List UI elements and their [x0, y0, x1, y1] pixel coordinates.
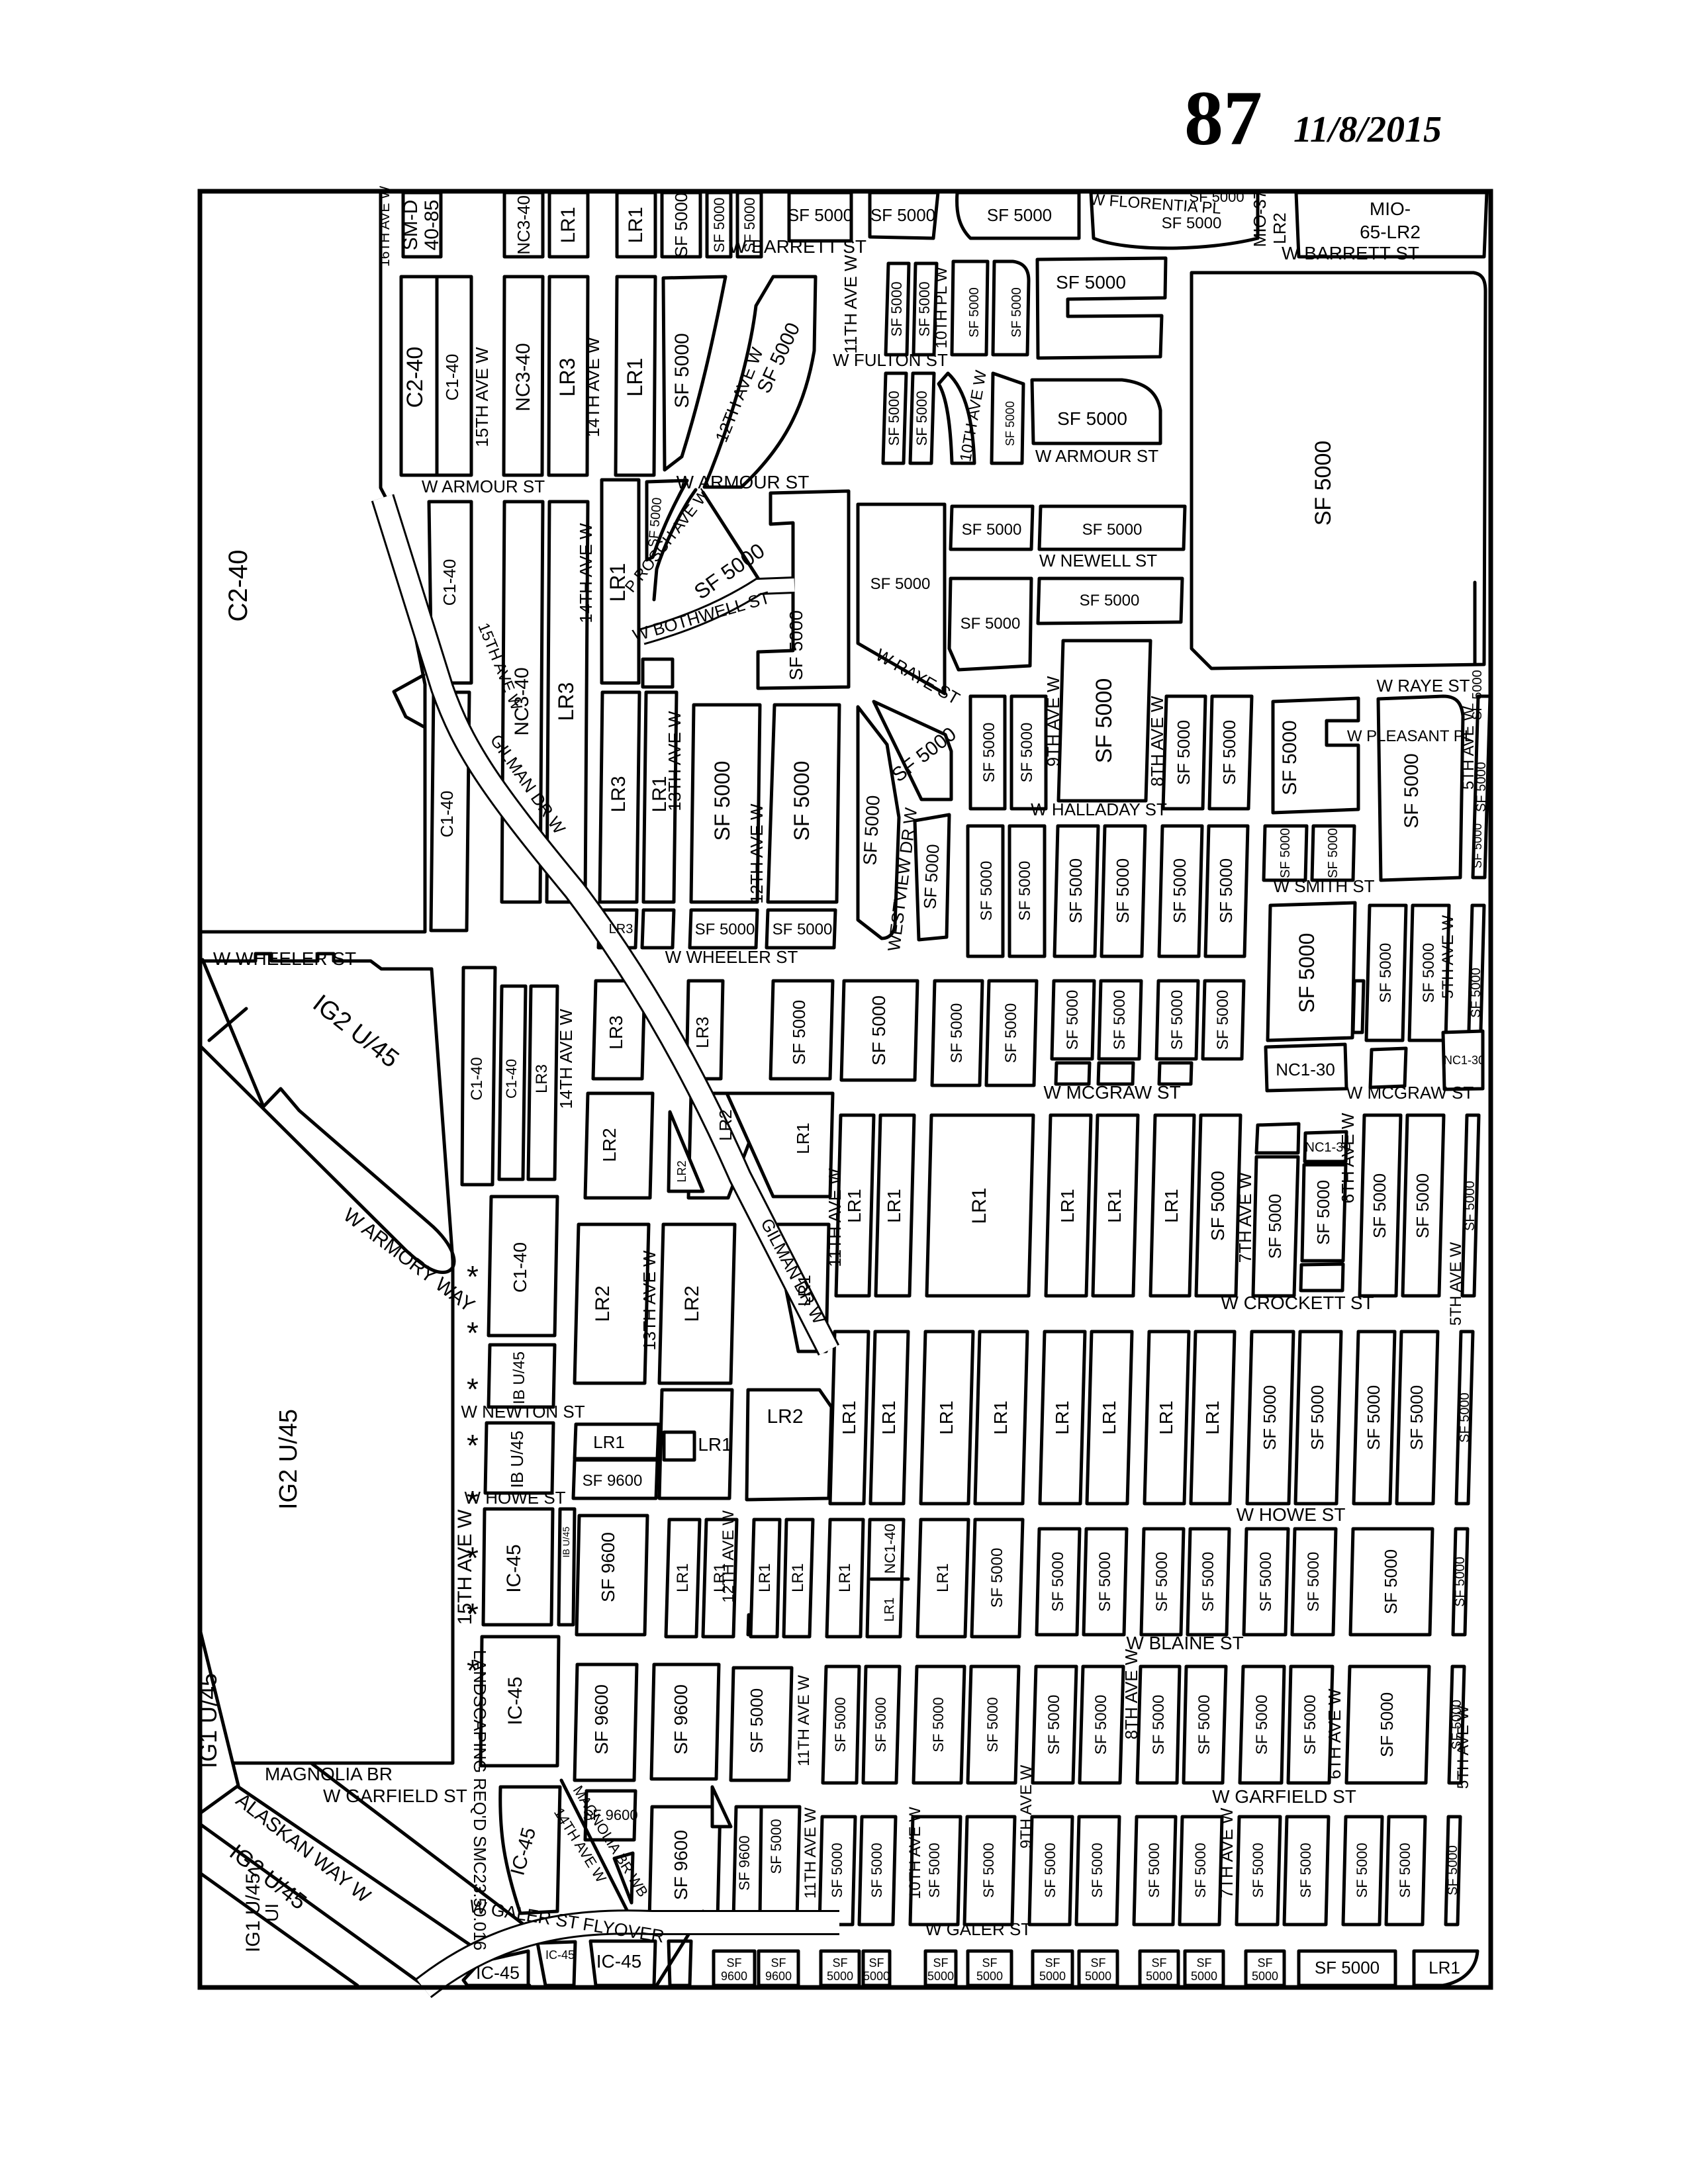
- svg-text:LR1: LR1: [1156, 1400, 1176, 1434]
- svg-text:SF 5000: SF 5000: [1471, 823, 1484, 868]
- svg-text:SF 5000: SF 5000: [1111, 990, 1129, 1050]
- svg-text:C2-40: C2-40: [224, 550, 253, 622]
- svg-text:SF 5000: SF 5000: [1219, 720, 1239, 785]
- svg-text:SF 5000: SF 5000: [987, 205, 1052, 225]
- svg-text:W BARRETT ST: W BARRETT ST: [1282, 243, 1419, 263]
- svg-text:8TH AVE W: 8TH AVE W: [1147, 696, 1167, 786]
- svg-text:SF 5000: SF 5000: [1446, 1845, 1460, 1895]
- svg-text:SF 5000: SF 5000: [1207, 1171, 1228, 1241]
- svg-text:SF: SF: [1257, 1956, 1272, 1970]
- svg-text:SF 5000: SF 5000: [1096, 1552, 1114, 1612]
- svg-text:IC-45: IC-45: [476, 1963, 520, 1983]
- svg-text:SF 5000: SF 5000: [1199, 1552, 1217, 1612]
- svg-text:SF 5000: SF 5000: [980, 723, 998, 783]
- svg-text:SF 5000: SF 5000: [786, 610, 806, 680]
- svg-text:SF 5000: SF 5000: [914, 390, 930, 445]
- svg-text:SF 9600: SF 9600: [736, 1835, 753, 1890]
- svg-text:SF 5000: SF 5000: [1305, 1552, 1323, 1612]
- svg-text:5000: 5000: [1191, 1970, 1217, 1983]
- svg-text:SF 5000: SF 5000: [1066, 858, 1086, 923]
- svg-text:LR1: LR1: [1161, 1189, 1182, 1222]
- svg-text:SF 5000: SF 5000: [926, 1843, 943, 1897]
- svg-text:LR1: LR1: [1429, 1958, 1460, 1978]
- svg-text:SF 5000: SF 5000: [832, 1697, 849, 1752]
- svg-text:SF 5000: SF 5000: [1370, 1173, 1389, 1238]
- svg-text:W NEWELL ST: W NEWELL ST: [1039, 551, 1157, 570]
- svg-text:SF 5000: SF 5000: [1042, 1843, 1058, 1897]
- svg-text:IB U/45: IB U/45: [510, 1351, 528, 1404]
- svg-text:SF 5000: SF 5000: [789, 1000, 809, 1065]
- svg-text:MIO-: MIO-: [1370, 199, 1411, 219]
- svg-text:SF 5000: SF 5000: [1168, 990, 1186, 1050]
- svg-text:W HOWE ST: W HOWE ST: [464, 1488, 565, 1508]
- svg-text:LR1: LR1: [593, 1432, 625, 1452]
- svg-text:LR1: LR1: [1057, 1189, 1078, 1222]
- svg-text:IC-45: IC-45: [503, 1544, 525, 1592]
- svg-text:LR1: LR1: [623, 358, 647, 397]
- svg-text:14TH AVE W: 14TH AVE W: [576, 523, 596, 623]
- svg-text:LR1: LR1: [844, 1189, 865, 1222]
- svg-text:SF 5000: SF 5000: [868, 1843, 885, 1897]
- svg-text:5000: 5000: [1252, 1970, 1278, 1983]
- svg-text:11TH AVE W: 11TH AVE W: [825, 1168, 845, 1267]
- svg-text:SF 5000: SF 5000: [919, 844, 943, 910]
- svg-text:SF 5000: SF 5000: [1257, 1552, 1275, 1612]
- svg-text:SF 5000: SF 5000: [1297, 1843, 1314, 1897]
- svg-text:SF 5000: SF 5000: [1253, 1695, 1271, 1755]
- svg-text:IC-45: IC-45: [504, 1676, 526, 1725]
- svg-text:10TH AVE W: 10TH AVE W: [906, 1807, 924, 1899]
- svg-text:5000: 5000: [1085, 1970, 1111, 1983]
- svg-text:LR1: LR1: [878, 1400, 899, 1434]
- svg-text:SF 5000: SF 5000: [1004, 401, 1017, 446]
- svg-text:SF: SF: [1196, 1956, 1211, 1970]
- svg-text:8TH AVE W: 8TH AVE W: [1121, 1649, 1141, 1739]
- svg-text:SF 5000: SF 5000: [1377, 1692, 1397, 1757]
- svg-text:SF 5000: SF 5000: [888, 281, 905, 336]
- svg-text:LR1: LR1: [884, 1189, 904, 1222]
- svg-text:SF 5000: SF 5000: [1196, 1695, 1213, 1755]
- svg-text:SF 5000: SF 5000: [1092, 1695, 1110, 1755]
- svg-text:MIO-37: MIO-37: [1250, 190, 1270, 248]
- svg-text:SF: SF: [726, 1956, 741, 1970]
- svg-text:UI: UI: [261, 1903, 282, 1922]
- svg-text:15TH AVE W: 15TH AVE W: [472, 347, 492, 447]
- svg-text:LR2: LR2: [599, 1128, 620, 1161]
- svg-text:SF 5000: SF 5000: [961, 615, 1021, 633]
- svg-text:SF 5000: SF 5000: [1113, 858, 1133, 923]
- svg-text:LR1: LR1: [839, 1400, 859, 1434]
- svg-text:SF 5000: SF 5000: [980, 1843, 997, 1897]
- svg-text:14TH AVE W: 14TH AVE W: [583, 337, 603, 437]
- svg-text:IC-45: IC-45: [545, 1948, 575, 1962]
- svg-text:C1-40: C1-40: [510, 1242, 530, 1293]
- svg-text:SF 5000: SF 5000: [1364, 1385, 1383, 1450]
- svg-text:SF 5000: SF 5000: [978, 861, 996, 921]
- svg-text:5000: 5000: [827, 1970, 853, 1983]
- svg-text:SF 5000: SF 5000: [1397, 1843, 1413, 1897]
- svg-text:C1-40: C1-40: [437, 791, 457, 838]
- svg-text:SF 5000: SF 5000: [790, 761, 814, 841]
- svg-text:LR2: LR2: [681, 1285, 703, 1322]
- svg-text:W BARRETT ST: W BARRETT ST: [729, 236, 867, 257]
- svg-text:9600: 9600: [721, 1970, 747, 1983]
- svg-text:SF 5000: SF 5000: [1056, 272, 1126, 293]
- svg-text:NC1-30: NC1-30: [1444, 1054, 1485, 1067]
- svg-text:NC1-40: NC1-40: [882, 1524, 898, 1574]
- svg-text:7TH AVE W: 7TH AVE W: [1235, 1172, 1255, 1263]
- svg-text:9TH AVE W: 9TH AVE W: [1017, 1765, 1035, 1849]
- svg-text:LR3: LR3: [554, 682, 578, 721]
- svg-text:SF 5000: SF 5000: [1016, 861, 1034, 921]
- svg-text:12TH AVE W: 12TH AVE W: [720, 1510, 737, 1603]
- svg-text:IG1 U/45: IG1 U/45: [195, 1673, 222, 1768]
- svg-text:SF 5000: SF 5000: [916, 281, 933, 336]
- svg-text:LR1: LR1: [1202, 1400, 1223, 1434]
- svg-text:SF 5000: SF 5000: [1377, 943, 1395, 1003]
- svg-text:5000: 5000: [863, 1970, 890, 1983]
- svg-text:SF 5000: SF 5000: [1082, 521, 1143, 539]
- svg-text:SF 5000: SF 5000: [1192, 1843, 1209, 1897]
- svg-text:65-LR2: 65-LR2: [1360, 222, 1421, 242]
- svg-text:W MCGRAW ST: W MCGRAW ST: [1043, 1082, 1180, 1103]
- svg-text:SF 5000: SF 5000: [1174, 720, 1194, 785]
- svg-text:SF 5000: SF 5000: [1250, 1843, 1266, 1897]
- svg-text:SF 5000: SF 5000: [988, 1548, 1006, 1608]
- svg-text:SF 5000: SF 5000: [886, 390, 902, 445]
- svg-text:9TH AVE W: 9TH AVE W: [1043, 676, 1063, 766]
- svg-text:W HOWE ST: W HOWE ST: [1237, 1504, 1346, 1525]
- svg-text:LR2: LR2: [675, 1160, 688, 1182]
- svg-text:SF 5000: SF 5000: [962, 521, 1022, 539]
- svg-text:SF 5000: SF 5000: [1453, 1557, 1468, 1607]
- svg-text:NC3-40: NC3-40: [514, 195, 534, 255]
- svg-text:SF: SF: [771, 1956, 786, 1970]
- svg-text:*: *: [467, 1316, 479, 1350]
- svg-text:SF 5000: SF 5000: [1401, 753, 1423, 828]
- svg-text:LR1: LR1: [625, 206, 647, 243]
- svg-text:5TH AVE W: 5TH AVE W: [1447, 1242, 1465, 1326]
- svg-text:SF: SF: [933, 1956, 948, 1970]
- svg-text:SF 5000: SF 5000: [1064, 990, 1082, 1050]
- svg-text:SF 5000: SF 5000: [1278, 828, 1293, 878]
- svg-text:SF 5000: SF 5000: [1080, 592, 1140, 610]
- svg-text:SF 5000: SF 5000: [984, 1697, 1001, 1752]
- svg-text:14TH AVE W: 14TH AVE W: [556, 1009, 576, 1109]
- svg-text:SF 5000: SF 5000: [1469, 968, 1483, 1018]
- svg-text:SF 5000: SF 5000: [1049, 1552, 1067, 1612]
- svg-text:SF 5000: SF 5000: [1089, 1843, 1105, 1897]
- svg-text:LR2: LR2: [716, 1109, 735, 1141]
- svg-text:SF 5000: SF 5000: [1307, 1385, 1327, 1450]
- svg-text:SF 5000: SF 5000: [1216, 858, 1236, 923]
- svg-text:87: 87: [1184, 75, 1262, 161]
- svg-text:*: *: [467, 1428, 479, 1463]
- svg-text:SF: SF: [982, 1956, 997, 1970]
- svg-text:W ARMOUR ST: W ARMOUR ST: [422, 477, 545, 496]
- svg-text:SF 5000: SF 5000: [870, 205, 935, 225]
- svg-text:LR1: LR1: [934, 1563, 952, 1592]
- svg-text:MAGNOLIA BR: MAGNOLIA BR: [265, 1764, 393, 1784]
- svg-text:SF 5000: SF 5000: [1407, 1385, 1427, 1450]
- svg-text:SF 5000: SF 5000: [1260, 1385, 1280, 1450]
- svg-text:LR1: LR1: [882, 1598, 897, 1622]
- svg-text:SF 5000: SF 5000: [768, 1819, 784, 1874]
- svg-text:C2-40: C2-40: [402, 347, 428, 408]
- svg-text:SF 5000: SF 5000: [1150, 1695, 1168, 1755]
- svg-text:SF 5000: SF 5000: [710, 761, 734, 841]
- svg-text:W ARMOUR ST: W ARMOUR ST: [1035, 446, 1158, 466]
- svg-text:5TH AVE W: 5TH AVE W: [1439, 915, 1457, 999]
- svg-text:7TH AVE W: 7TH AVE W: [1217, 1807, 1237, 1898]
- svg-text:SF 5000: SF 5000: [1326, 828, 1340, 878]
- svg-text:12TH AVE W: 12TH AVE W: [747, 803, 767, 904]
- svg-text:IB U/45: IB U/45: [561, 1526, 571, 1557]
- svg-text:SF: SF: [868, 1956, 884, 1970]
- svg-text:W GARFIELD ST: W GARFIELD ST: [323, 1786, 467, 1806]
- svg-text:LR3: LR3: [608, 776, 630, 812]
- svg-text:9600: 9600: [765, 1970, 792, 1983]
- svg-text:SF 5000: SF 5000: [1214, 990, 1232, 1050]
- svg-text:*: *: [467, 1259, 479, 1294]
- svg-text:5000: 5000: [927, 1970, 954, 1983]
- svg-text:16TH AVE W: 16TH AVE W: [377, 186, 393, 267]
- svg-text:LR1: LR1: [836, 1563, 854, 1592]
- svg-text:11TH AVE W: 11TH AVE W: [802, 1807, 820, 1899]
- svg-text:SF 5000: SF 5000: [1381, 1549, 1401, 1614]
- svg-text:SF 5000: SF 5000: [1474, 762, 1489, 812]
- svg-text:SF 9600: SF 9600: [583, 1472, 643, 1490]
- svg-text:LR2: LR2: [767, 1406, 803, 1428]
- svg-text:SF 5000: SF 5000: [1146, 1843, 1162, 1897]
- svg-text:LR1: LR1: [756, 1563, 774, 1592]
- svg-text:NC3-40: NC3-40: [512, 343, 534, 411]
- svg-text:15TH AVE W: 15TH AVE W: [454, 1509, 476, 1625]
- svg-text:C1-40: C1-40: [503, 1059, 520, 1099]
- svg-text:11/8/2015: 11/8/2015: [1293, 109, 1442, 150]
- svg-text:SF 5000: SF 5000: [930, 1697, 947, 1752]
- svg-text:W PLEASANT PL: W PLEASANT PL: [1347, 727, 1473, 745]
- svg-text:SF 5000: SF 5000: [671, 193, 691, 257]
- svg-text:LR1: LR1: [793, 1122, 813, 1154]
- svg-text:SF 9600: SF 9600: [583, 1807, 637, 1823]
- svg-text:LR1: LR1: [1099, 1400, 1119, 1434]
- svg-text:SF 5000: SF 5000: [1463, 1181, 1477, 1231]
- svg-text:LR1: LR1: [674, 1563, 692, 1592]
- svg-text:6TH AVE W: 6TH AVE W: [1338, 1113, 1358, 1203]
- svg-text:SF 5000: SF 5000: [1301, 1695, 1319, 1755]
- svg-text:SF 5000: SF 5000: [1279, 720, 1301, 795]
- svg-text:13TH AVE W: 13TH AVE W: [665, 711, 684, 811]
- svg-text:SF 5000: SF 5000: [1009, 287, 1024, 338]
- svg-text:SF 5000: SF 5000: [1413, 1173, 1432, 1238]
- svg-text:W SMITH ST: W SMITH ST: [1273, 876, 1374, 896]
- svg-text:SF 5000: SF 5000: [788, 205, 853, 225]
- svg-text:6TH AVE W: 6TH AVE W: [1325, 1688, 1344, 1779]
- svg-text:LR1: LR1: [789, 1563, 807, 1592]
- svg-text:LR1: LR1: [698, 1434, 731, 1455]
- svg-text:SF: SF: [832, 1956, 847, 1970]
- svg-text:C1-40: C1-40: [440, 559, 459, 606]
- svg-text:W GARFIELD ST: W GARFIELD ST: [1212, 1786, 1356, 1807]
- svg-text:SF 5000: SF 5000: [1295, 933, 1319, 1013]
- svg-text:LR1: LR1: [968, 1187, 990, 1224]
- svg-text:W GALER ST: W GALER ST: [925, 1919, 1031, 1939]
- svg-text:LR2: LR2: [1270, 212, 1289, 244]
- svg-text:LR2: LR2: [592, 1285, 614, 1322]
- svg-text:W WHEELER ST: W WHEELER ST: [665, 947, 798, 967]
- svg-text:SF 9600: SF 9600: [671, 1830, 691, 1900]
- svg-text:IB U/45: IB U/45: [507, 1431, 527, 1488]
- svg-text:SF 5000: SF 5000: [671, 333, 693, 408]
- svg-text:W CROCKETT ST: W CROCKETT ST: [1221, 1293, 1374, 1313]
- svg-text:SF 5000: SF 5000: [967, 287, 982, 338]
- svg-text:W MCGRAW ST: W MCGRAW ST: [1346, 1083, 1474, 1103]
- svg-text:SF 5000: SF 5000: [773, 921, 833, 938]
- svg-text:11TH AVE W: 11TH AVE W: [795, 1675, 813, 1766]
- svg-text:5000: 5000: [1039, 1970, 1066, 1983]
- svg-text:LR3: LR3: [555, 358, 579, 397]
- svg-text:5000: 5000: [976, 1970, 1003, 1983]
- svg-text:SF 9600: SF 9600: [671, 1684, 691, 1754]
- svg-text:LR3: LR3: [606, 1015, 626, 1049]
- svg-text:SF 5000: SF 5000: [695, 921, 755, 938]
- svg-text:SF 5000: SF 5000: [829, 1843, 845, 1897]
- svg-text:11TH AVE W: 11TH AVE W: [841, 255, 861, 354]
- svg-text:SF 5000: SF 5000: [1420, 943, 1438, 1003]
- svg-text:LR1: LR1: [990, 1400, 1011, 1434]
- svg-text:C1-40: C1-40: [468, 1057, 486, 1100]
- svg-text:SF 5000: SF 5000: [1153, 1552, 1171, 1612]
- svg-text:SF 5000: SF 5000: [868, 995, 889, 1066]
- svg-text:SF 5000: SF 5000: [1045, 1695, 1063, 1755]
- svg-text:C1-40: C1-40: [442, 354, 462, 401]
- svg-text:SF: SF: [1151, 1956, 1166, 1970]
- svg-text:SF 9600: SF 9600: [598, 1532, 618, 1602]
- svg-text:SF 5000: SF 5000: [1265, 1194, 1285, 1259]
- svg-text:SF 5000: SF 5000: [1450, 1700, 1464, 1750]
- svg-text:LR1: LR1: [557, 206, 579, 243]
- svg-text:SF 5000: SF 5000: [747, 1688, 767, 1753]
- svg-text:SF: SF: [1045, 1956, 1060, 1970]
- svg-text:IG2 U/45: IG2 U/45: [275, 1409, 303, 1510]
- svg-text:LR1: LR1: [1052, 1400, 1072, 1434]
- svg-text:W HALLADAY ST: W HALLADAY ST: [1031, 799, 1167, 819]
- svg-text:SF: SF: [1090, 1956, 1105, 1970]
- svg-text:13TH AVE W: 13TH AVE W: [639, 1250, 659, 1351]
- svg-text:SF 5000: SF 5000: [872, 1697, 889, 1752]
- svg-text:SF 5000: SF 5000: [1311, 441, 1336, 526]
- svg-text:SF 5000: SF 5000: [1002, 1003, 1020, 1064]
- svg-text:NC1-30: NC1-30: [1276, 1060, 1335, 1079]
- svg-text:SF 5000: SF 5000: [1170, 858, 1190, 923]
- svg-text:LR3: LR3: [609, 922, 633, 936]
- svg-text:40-85: 40-85: [421, 200, 443, 251]
- svg-text:SF 5000: SF 5000: [1189, 189, 1244, 205]
- svg-text:LR3: LR3: [692, 1017, 712, 1048]
- svg-text:5000: 5000: [1146, 1970, 1172, 1983]
- svg-text:LR1: LR1: [1104, 1189, 1125, 1222]
- svg-text:SF 5000: SF 5000: [948, 1003, 966, 1064]
- svg-text:W WHEELER ST: W WHEELER ST: [213, 948, 356, 969]
- svg-text:SF 5000: SF 5000: [1315, 1958, 1380, 1978]
- svg-text:W FULTON ST: W FULTON ST: [833, 350, 948, 370]
- svg-text:SF 5000: SF 5000: [870, 575, 931, 593]
- svg-text:SF 5000: SF 5000: [859, 795, 883, 866]
- svg-text:SF 5000: SF 5000: [1092, 678, 1117, 764]
- svg-text:W RAYE ST: W RAYE ST: [1376, 676, 1470, 696]
- svg-text:LR3: LR3: [533, 1064, 551, 1093]
- svg-text:W BLAINE ST: W BLAINE ST: [1126, 1633, 1243, 1653]
- svg-text:SF 5000: SF 5000: [1458, 1392, 1472, 1443]
- svg-text:SM-D: SM-D: [400, 200, 422, 251]
- svg-text:SF 5000: SF 5000: [1354, 1843, 1370, 1897]
- svg-text:SF 5000: SF 5000: [1018, 723, 1036, 783]
- svg-text:SF 9600: SF 9600: [591, 1684, 612, 1754]
- svg-text:SF 5000: SF 5000: [711, 197, 727, 252]
- svg-text:LR1: LR1: [936, 1400, 957, 1434]
- svg-text:IC-45: IC-45: [596, 1951, 641, 1972]
- svg-text:10TH PL W: 10TH PL W: [933, 267, 951, 348]
- svg-text:SF 5000: SF 5000: [1057, 408, 1127, 429]
- svg-text:SF 5000: SF 5000: [1313, 1180, 1333, 1245]
